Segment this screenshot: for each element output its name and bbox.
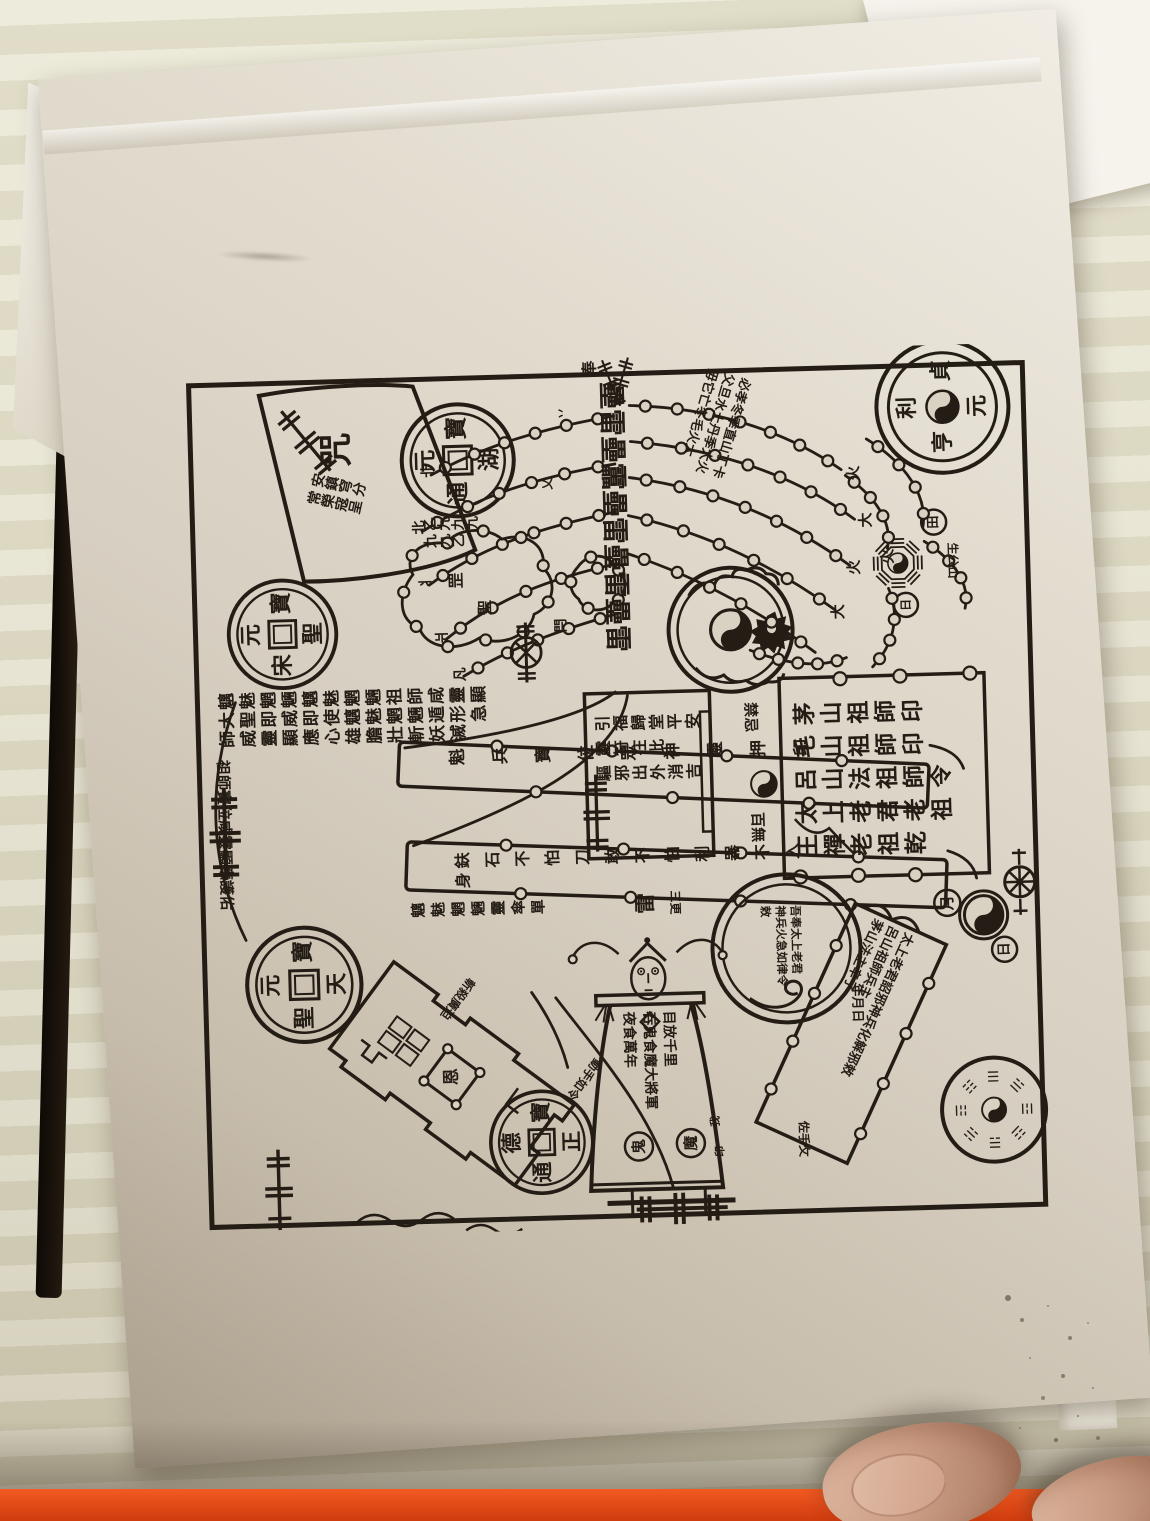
figure-text: 目放千里 吞鬼食魔大將軍 夜食萬年 — [618, 1010, 681, 1110]
svg-text:寶: 寶 — [268, 592, 295, 615]
svg-text:☳: ☳ — [1008, 1122, 1028, 1142]
svg-text:罡: 罡 — [446, 572, 465, 589]
fortress-seal-char: 恩 — [442, 1068, 462, 1086]
svg-text:丬: 丬 — [418, 575, 434, 589]
talisman-diagram: 貞 元 亨 利 寶 湖 通 元 寶 聖 宋 元 寶 — [182, 342, 1068, 1240]
below-band-text: 魑魅魍魎靈傘單 — [410, 898, 550, 921]
svg-text:日: 日 — [899, 599, 913, 611]
svg-text:丷: 丷 — [554, 407, 568, 419]
svg-text:奉: 奉 — [579, 359, 598, 378]
taboo-top: 禁忌 — [741, 702, 761, 733]
ghost-seal: 鬼 — [630, 1139, 648, 1155]
svg-text:天: 天 — [324, 972, 350, 996]
side-small-chars: 生公山 — [944, 542, 960, 578]
taboo-bottom: 百無 — [748, 812, 768, 843]
svg-text:☵: ☵ — [962, 1123, 982, 1143]
four-virtues-circle: 貞 元 亨 利 — [875, 342, 1011, 475]
thunder-char: 雷 — [633, 892, 658, 914]
bagua-circle: ☰ ☱ ☲ ☳ ☴ ☵ ☶ ☷ — [941, 1056, 1048, 1163]
virtue-top: 貞 — [929, 359, 955, 382]
date-column: 年月日 — [848, 983, 865, 1022]
scattered-chars: 卝 北 丬 爿 凡 火 大 火 大 火 奉 丷 乂 閂 罡 聖 — [407, 351, 900, 682]
svg-text:火: 火 — [845, 559, 863, 575]
svg-text:☴: ☴ — [988, 1133, 1001, 1149]
x-circle-symbol — [510, 622, 542, 683]
virtue-right: 元 — [965, 394, 991, 417]
svg-text:正: 正 — [560, 1131, 585, 1153]
svg-text:寶: 寶 — [290, 940, 317, 963]
thumbnail — [846, 1446, 951, 1521]
svg-text:乂: 乂 — [540, 477, 554, 491]
svg-text:元: 元 — [259, 974, 285, 997]
svg-text:我: 我 — [708, 1116, 722, 1127]
incantation-block: 魑魅魍魎魑魅魍魎祖師咸靈顯 大聖即威即使魑魅魍魎遁形急 師威靈顯應心雄膽壯斬妖滅 — [217, 688, 491, 753]
svg-text:閂: 閂 — [553, 618, 569, 632]
svg-text:☰: ☰ — [987, 1069, 1000, 1085]
svg-text:聖: 聖 — [476, 600, 494, 616]
svg-text:宋: 宋 — [270, 654, 297, 677]
svg-text:☷: ☷ — [960, 1077, 980, 1097]
svg-text:聖: 聖 — [301, 622, 327, 645]
virtue-bottom: 亨 — [930, 430, 957, 453]
svg-text:☱: ☱ — [1006, 1076, 1026, 1096]
hand-column: 佐手攵 — [795, 1121, 811, 1157]
virtue-left: 利 — [895, 396, 921, 419]
svg-text:元: 元 — [239, 624, 265, 647]
svg-text:聖: 聖 — [292, 1006, 318, 1029]
svg-text:☶: ☶ — [954, 1104, 970, 1117]
svg-text:德: 德 — [500, 1132, 525, 1154]
wheel-symbol — [1004, 848, 1036, 915]
svg-text:火: 火 — [844, 465, 862, 481]
banner-big-char: 咒 — [316, 432, 357, 467]
svg-text:印: 印 — [713, 1146, 726, 1157]
demon-seal: 魔 — [682, 1135, 700, 1151]
spell-text: 吾奉太上老君 神兵火急如律令 敕 — [757, 905, 804, 987]
svg-text:火: 火 — [878, 548, 896, 564]
svg-text:☲: ☲ — [1018, 1102, 1034, 1115]
trunk-glyphs: 壘雷壘靁壘雷壘雷壘雷 — [595, 382, 633, 653]
svg-text:爿: 爿 — [433, 630, 450, 644]
sun-char: 日 — [996, 942, 1012, 956]
toner-speckles — [1005, 1295, 1011, 1301]
svg-text:大: 大 — [856, 512, 874, 528]
svg-text:通: 通 — [530, 1161, 555, 1183]
geng-chars: 三更 — [667, 890, 683, 914]
dragon-taiji-circle — [667, 566, 794, 693]
svg-text:凡: 凡 — [453, 667, 469, 681]
taboo-taiji — [751, 771, 777, 797]
patriarch-panel-text: 茅山祖師印 毛山祖師印 呂山法祖師令 太上老君老祖 王禪老祖乾 — [792, 697, 959, 866]
photo-of-talisman-page: 貞 元 亨 利 寶 湖 通 元 寶 聖 宋 元 寶 — [0, 0, 1150, 1521]
coin-sheng-song: 寶 聖 宋 元 — [227, 579, 337, 689]
svg-text:大: 大 — [829, 604, 847, 620]
svg-text:寶: 寶 — [443, 416, 471, 440]
nines-marks: 乙九九九 九九乙 — [422, 516, 479, 552]
svg-text:卝: 卝 — [420, 464, 436, 478]
